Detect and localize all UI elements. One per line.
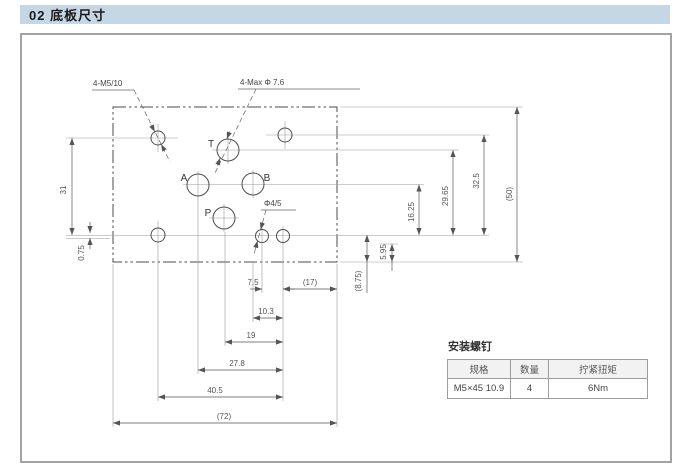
dim-width-overall: (72) <box>217 412 232 421</box>
dim-pilot-edge: 5.95 <box>379 244 388 260</box>
col-header-torque: 拧紧扭矩 <box>549 360 648 379</box>
port-label-p: P <box>205 208 212 219</box>
screw-table-title: 安装螺钉 <box>448 338 637 354</box>
dim-top-right: 32.5 <box>472 173 481 189</box>
col-header-quantity: 数量 <box>511 360 549 379</box>
mounting-screw-info: 安装螺钉 规格 数量 拧紧扭矩 M5×45 10.9 4 6Nm <box>447 338 637 399</box>
port-label-t: T <box>208 139 214 150</box>
plate-holes <box>151 128 292 243</box>
port-label-a: A <box>181 173 188 184</box>
dim-ab-height: 16.25 <box>407 201 416 222</box>
cell-quantity: 4 <box>511 379 549 399</box>
dim-row-edge: (8.75) <box>354 270 363 291</box>
callout-mounting-holes: 4-M5/10 <box>93 79 123 88</box>
dim-left-31: 31 <box>59 185 68 194</box>
screw-table: 规格 数量 拧紧扭矩 M5×45 10.9 4 6Nm <box>447 359 648 399</box>
port-label-b: B <box>264 173 271 184</box>
callout-pilot-hole: Φ4/5 <box>264 199 282 208</box>
cell-torque: 6Nm <box>549 379 648 399</box>
col-header-spec: 规格 <box>448 360 511 379</box>
callout-port-max-diameter: 4-Max Φ 7.6 <box>240 78 285 87</box>
screw-table-header-row: 规格 数量 拧紧扭矩 <box>448 360 648 379</box>
dim-17: (17) <box>303 278 318 287</box>
dim-40-5: 40.5 <box>207 386 223 395</box>
cell-spec: M5×45 10.9 <box>448 379 511 399</box>
dim-left-offset: 0.75 <box>77 245 86 261</box>
dim-7-5: 7.5 <box>247 278 259 287</box>
dim-t-height: 29.65 <box>441 185 450 206</box>
dim-27-8: 27.8 <box>229 359 245 368</box>
screw-table-data-row: M5×45 10.9 4 6Nm <box>448 379 648 399</box>
dim-height-overall: (50) <box>505 187 514 202</box>
technical-drawing: 4-M5/10 4-Max Φ 7.6 Φ4/5 T A B P 31 0.75… <box>0 0 680 471</box>
dim-19: 19 <box>247 331 256 340</box>
dim-10-3: 10.3 <box>258 307 274 316</box>
